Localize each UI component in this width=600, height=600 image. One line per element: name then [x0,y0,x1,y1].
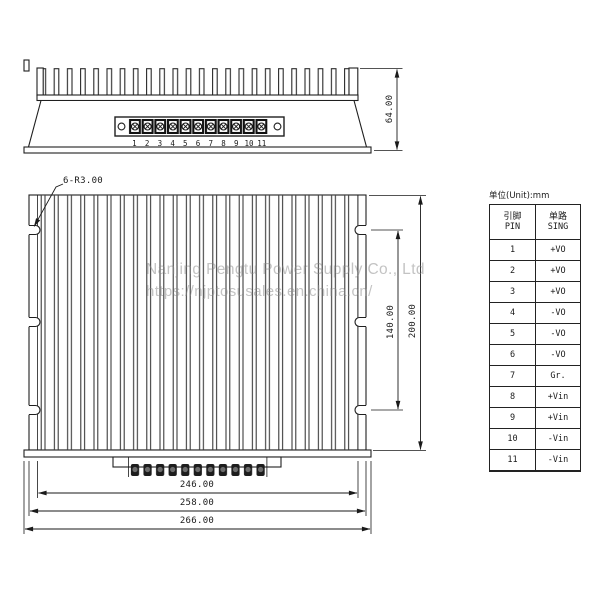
pin-number: 10 [243,138,256,149]
dim-text-266: 266.00 [172,516,222,526]
pin-number: 7 [204,138,217,149]
pin-number: 3 [153,138,166,149]
watermark-company: Nanjing Pengtu Power Supply Co., Ltd [146,261,425,279]
pin-number: 9 [230,138,243,149]
heatsink-fins-front [38,196,359,450]
pin-table-header-pin: 引脚 PIN [490,205,536,240]
pin-table: 引脚 PIN 单路 SING 1 +VO 2 +VO 3 +VO 4 -VO 5… [489,204,581,472]
table-cell-sing: -Vin [536,429,580,450]
pin-number: 5 [179,138,192,149]
table-cell-sing: -VO [536,324,580,345]
header-pin-en: PIN [505,222,520,232]
header-pin-cn: 引脚 [503,212,521,222]
header-sing-cn: 单路 [549,212,567,222]
table-cell-sing: +VO [536,261,580,282]
table-cell-pin: 3 [490,282,536,303]
unit-label: 单位(Unit):mm [489,189,549,201]
dim-text-200: 200.00 [408,299,418,343]
dim-text-246: 246.00 [172,480,222,490]
heatsink-end-fin-left [37,68,43,96]
pin-number: 4 [166,138,179,149]
side-view-flange-tab [24,60,29,71]
pin-table-header-sing: 单路 SING [536,205,580,240]
dim-text-64: 64.00 [385,89,395,129]
table-cell-sing: +VO [536,240,580,261]
table-cell-sing: +Vin [536,387,580,408]
heatsink-end-fin-right [349,68,358,96]
slot-label: 6-R3.00 [63,176,103,186]
terminal-screws-front [129,464,267,478]
pin-number-row: 1 2 3 4 5 6 7 8 9 10 11 [128,138,268,149]
dim-text-258: 258.00 [172,498,222,508]
table-cell-sing: -VO [536,303,580,324]
table-cell-pin: 7 [490,366,536,387]
table-cell-pin: 11 [490,450,536,471]
front-view [24,184,426,534]
pin-number: 6 [192,138,205,149]
table-cell-sing: +VO [536,282,580,303]
pin-number: 1 [128,138,141,149]
table-cell-pin: 6 [490,345,536,366]
table-cell-sing: +Vin [536,408,580,429]
dim-text-140: 140.00 [386,300,396,344]
watermark-url: https://njptosusales.en.china.cn/ [146,283,373,300]
table-cell-pin: 5 [490,324,536,345]
pin-number: 11 [255,138,268,149]
header-sing-en: SING [548,222,568,232]
table-cell-sing: Gr. [536,366,580,387]
table-cell-sing: -Vin [536,450,580,471]
pin-number: 2 [141,138,154,149]
table-cell-sing: -VO [536,345,580,366]
heatsink-base [37,95,358,101]
drawing-page: .ln{fill:#ffffff;stroke:#1f1f1f;stroke-w… [0,0,600,600]
table-cell-pin: 4 [490,303,536,324]
terminal-block-hole-left [118,123,125,130]
terminal-block-hole-right [274,123,281,130]
table-cell-pin: 2 [490,261,536,282]
table-cell-pin: 9 [490,408,536,429]
table-cell-pin: 10 [490,429,536,450]
terminal-screws [129,119,268,134]
heatsink-fins-side [37,68,358,96]
table-cell-pin: 1 [490,240,536,261]
pin-number: 8 [217,138,230,149]
table-cell-pin: 8 [490,387,536,408]
mounting-base-strip-front [24,450,371,457]
